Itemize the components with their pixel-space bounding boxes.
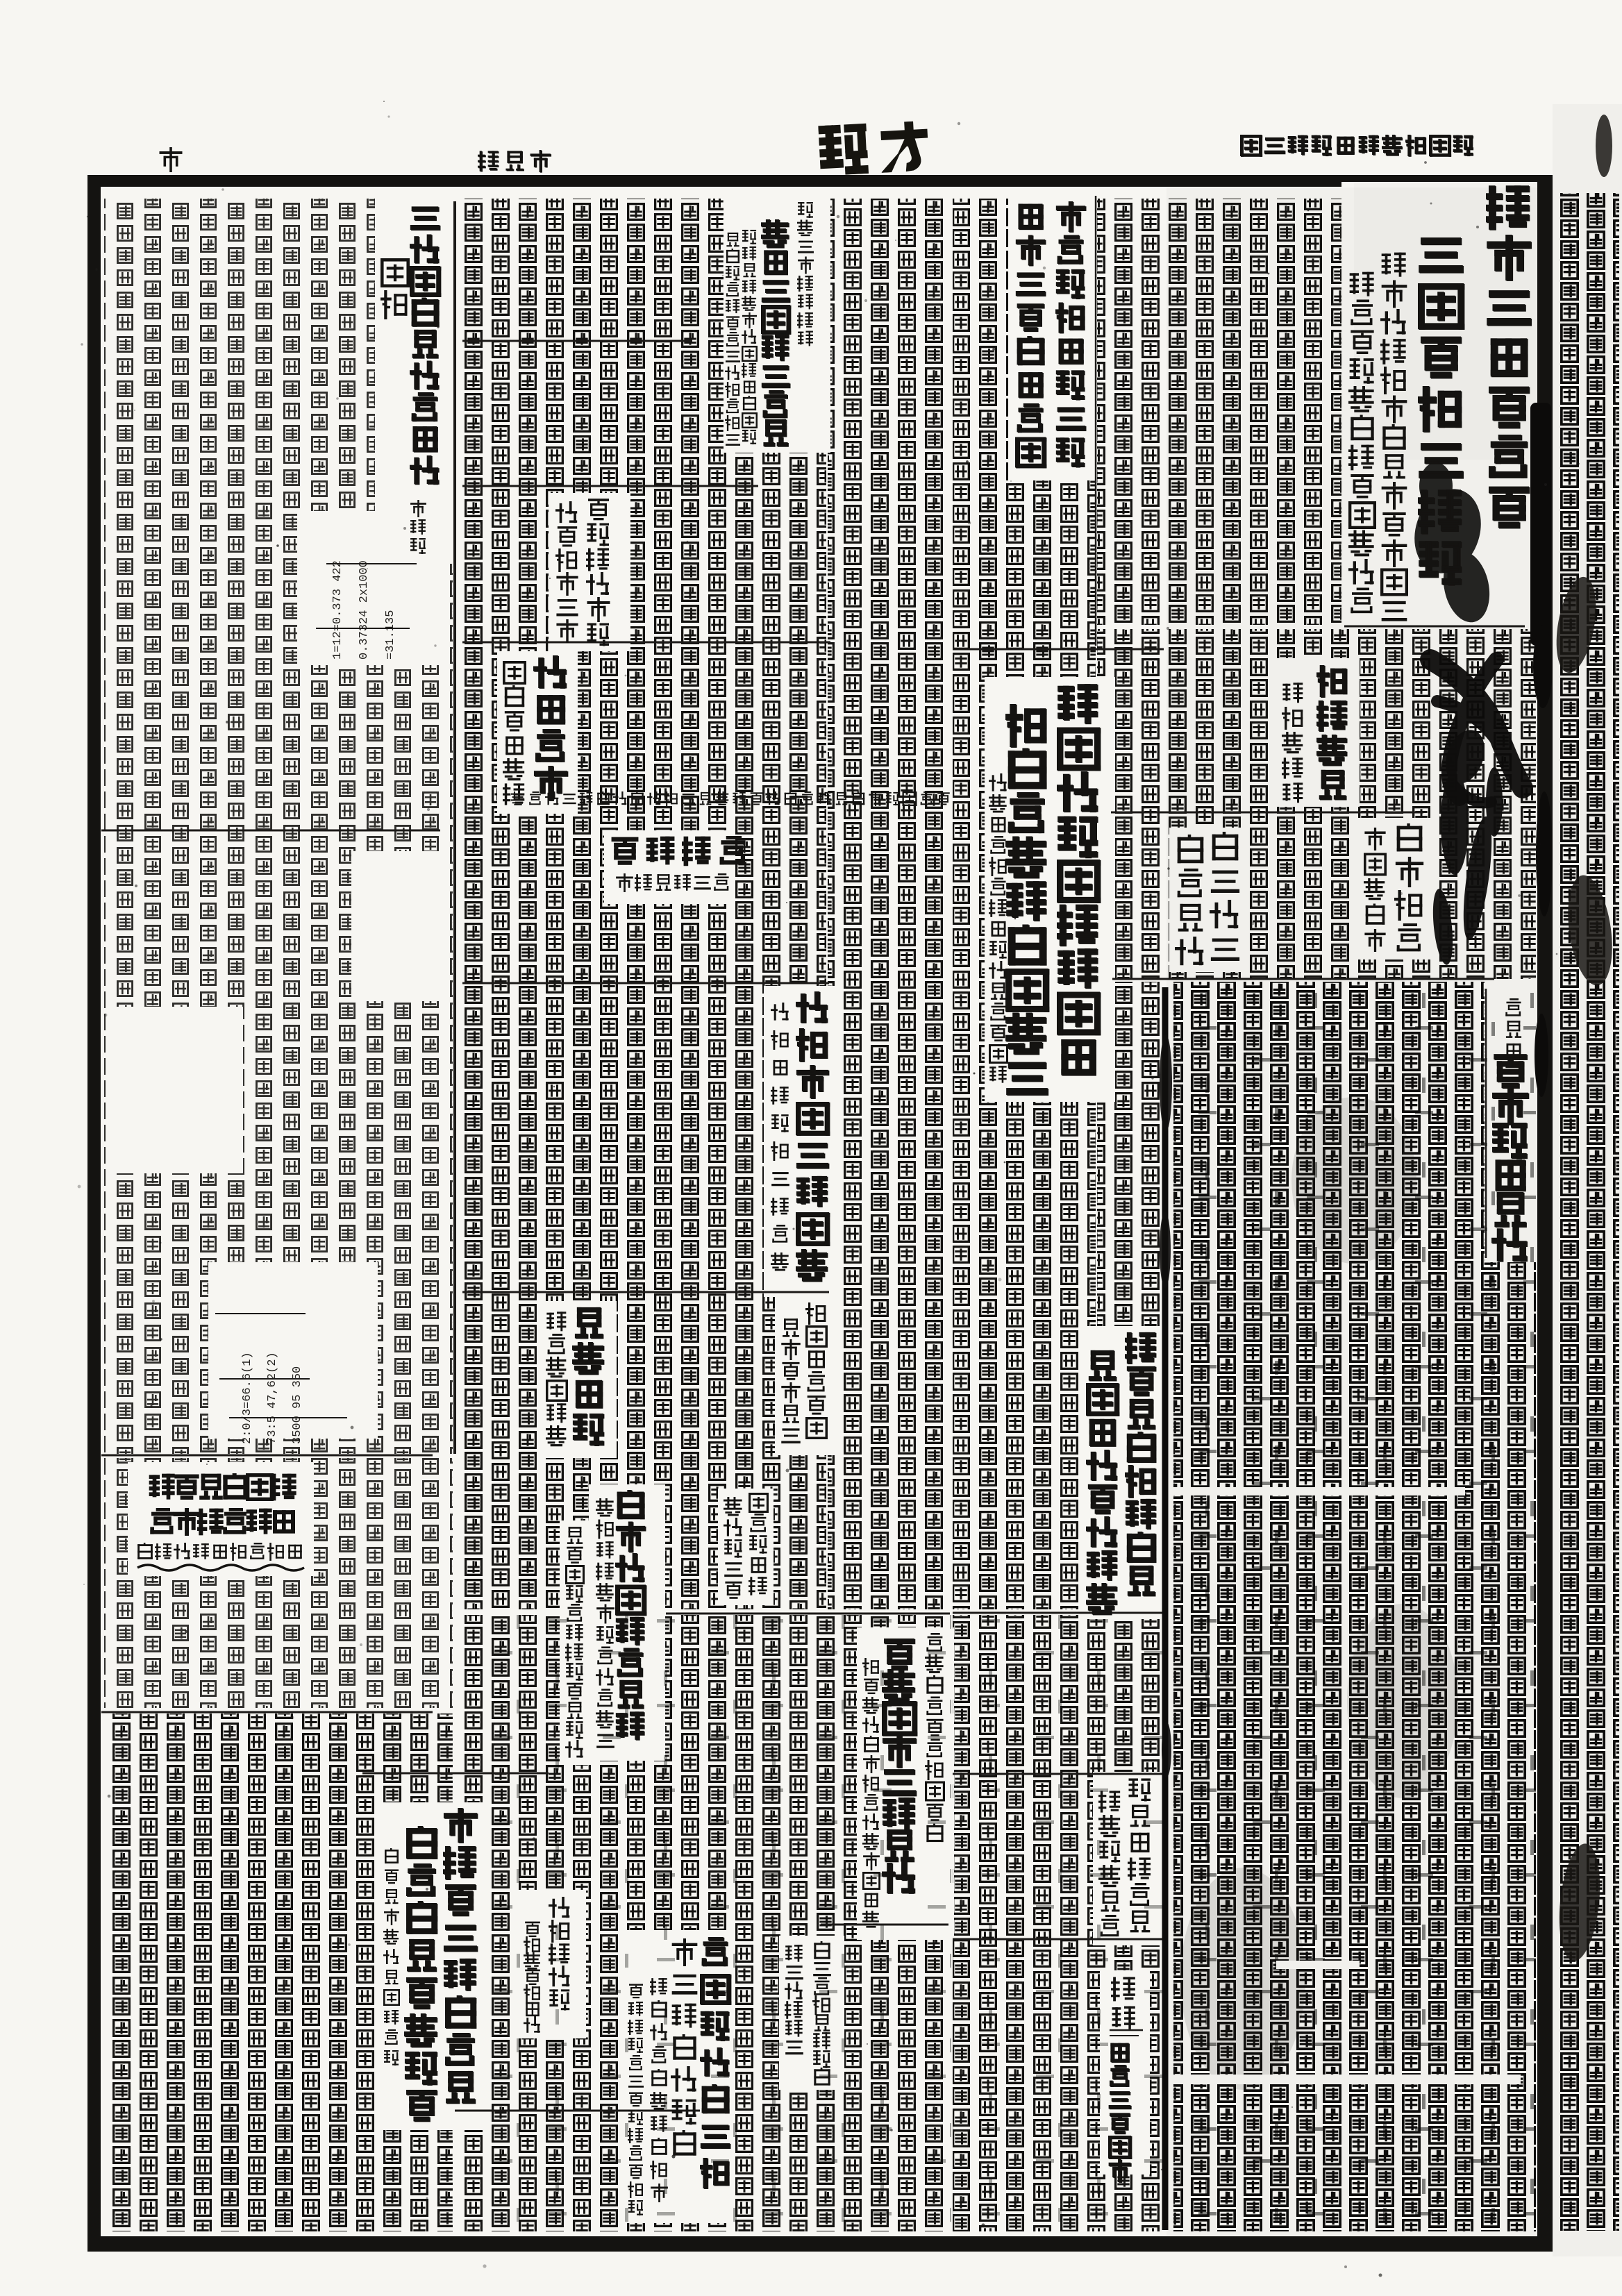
svg-text:3500 95 350: 3500 95 350 [291, 1366, 304, 1444]
svg-text:=31.135: =31.135 [384, 610, 397, 660]
svg-text:2:0/3=66.6(1): 2:0/3=66.6(1) [241, 1352, 254, 1444]
svg-text:1=12=0.373 422: 1=12=0.373 422 [331, 560, 344, 660]
svg-text:73:5 47,62(2): 73:5 47,62(2) [266, 1352, 279, 1444]
svg-text:0.37324 2x1000: 0.37324 2x1000 [358, 560, 371, 660]
